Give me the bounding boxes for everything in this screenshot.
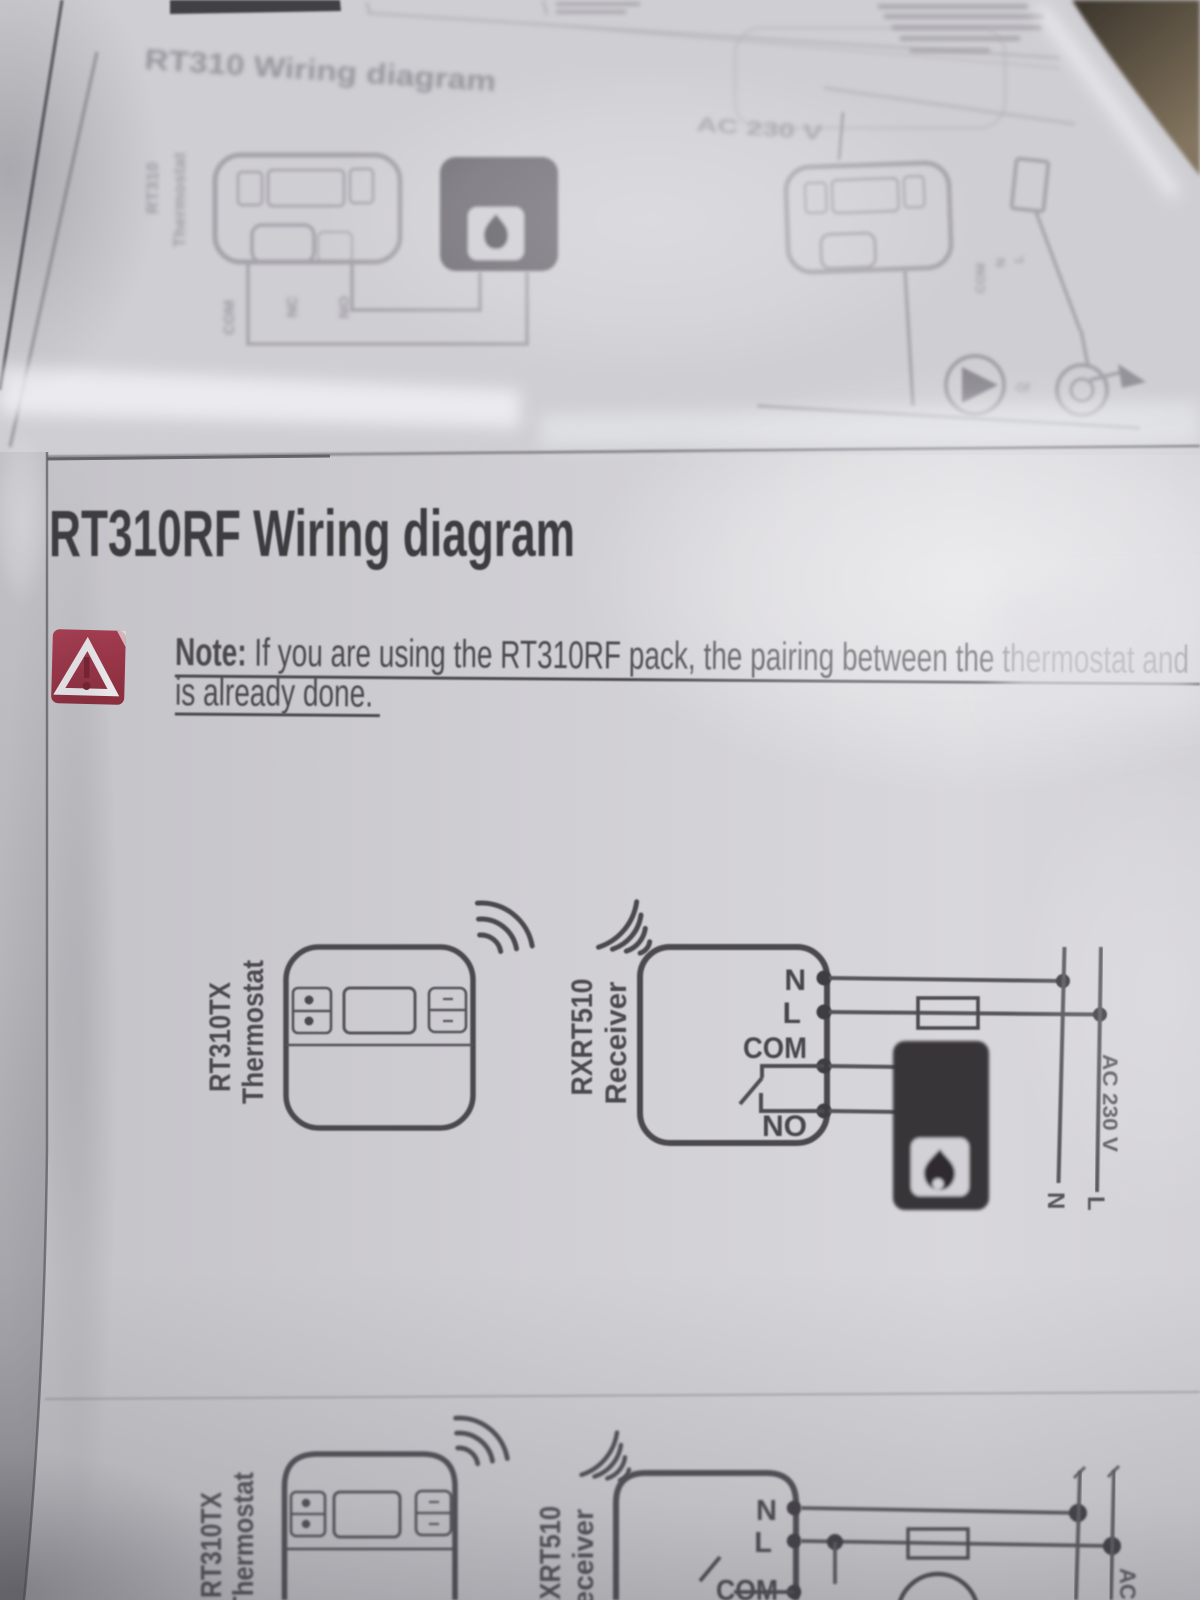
svg-text:Thermostat: Thermostat: [237, 960, 270, 1104]
svg-text:Receiver: Receiver: [600, 981, 633, 1104]
svg-text:RXRT510: RXRT510: [566, 979, 599, 1096]
svg-text:RT310TX: RT310TX: [204, 982, 237, 1092]
svg-text:NO: NO: [762, 1110, 807, 1143]
svg-text:is already done.: is already done.: [175, 671, 373, 716]
svg-text:L: L: [1011, 255, 1026, 263]
svg-text:L: L: [783, 997, 801, 1030]
svg-text:COM: COM: [221, 300, 238, 335]
svg-text:Thermostat: Thermostat: [170, 152, 189, 247]
svg-text:RT310RF Wiring diagram: RT310RF Wiring diagram: [49, 496, 575, 570]
svg-text:N: N: [993, 258, 1008, 267]
svg-text:COM: COM: [743, 1032, 807, 1065]
svg-text:N: N: [1042, 1192, 1069, 1209]
svg-text:N: N: [784, 964, 806, 997]
svg-text:COM: COM: [973, 263, 988, 293]
svg-text:NC: NC: [284, 296, 301, 318]
